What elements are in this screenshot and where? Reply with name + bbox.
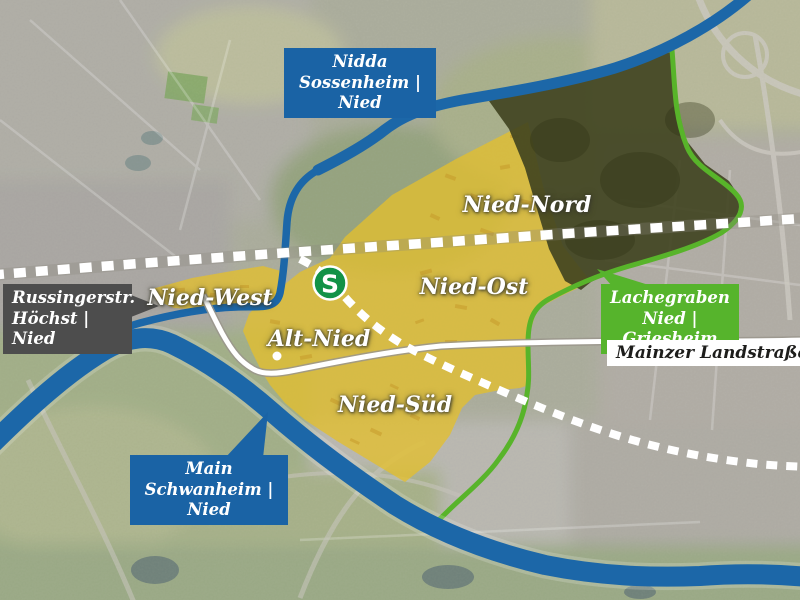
callout-main-line2: Schwanheim | Nied [135, 480, 283, 521]
callout-russingerstr-line2: Höchst | Nied [12, 309, 123, 350]
callout-nidda-line2: Sossenheim | Nied [289, 73, 431, 114]
district-label-nied-sued: Nied-Süd [320, 392, 470, 418]
callout-nidda: Nidda Sossenheim | Nied [284, 48, 436, 118]
callout-main: Main Schwanheim | Nied [130, 455, 288, 525]
nied-district-map: S Nidda Sossenheim | Nied Russingerstr. … [0, 0, 800, 600]
callout-lachegraben-line1: Lachegraben [606, 288, 734, 309]
callout-russingerstr: Russingerstr. Höchst | Nied [3, 284, 132, 354]
callout-nidda-line1: Nidda [289, 52, 431, 73]
district-label-nied-west: Nied-West [135, 285, 285, 311]
district-label-nied-ost: Nied-Ost [399, 274, 549, 300]
district-label-nied-nord: Nied-Nord [452, 192, 602, 218]
district-label-alt-nied: Alt-Nied [244, 326, 394, 352]
sbahn-logo-letter: S [321, 270, 339, 299]
road-label-mainzer-landstrasse: Mainzer Landstraße [607, 340, 800, 366]
station-dot [273, 352, 282, 361]
callout-main-line1: Main [135, 459, 283, 480]
sbahn-logo: S [314, 267, 347, 300]
road-label-text: Mainzer Landstraße [616, 343, 800, 363]
callout-russingerstr-line1: Russingerstr. [12, 288, 123, 309]
